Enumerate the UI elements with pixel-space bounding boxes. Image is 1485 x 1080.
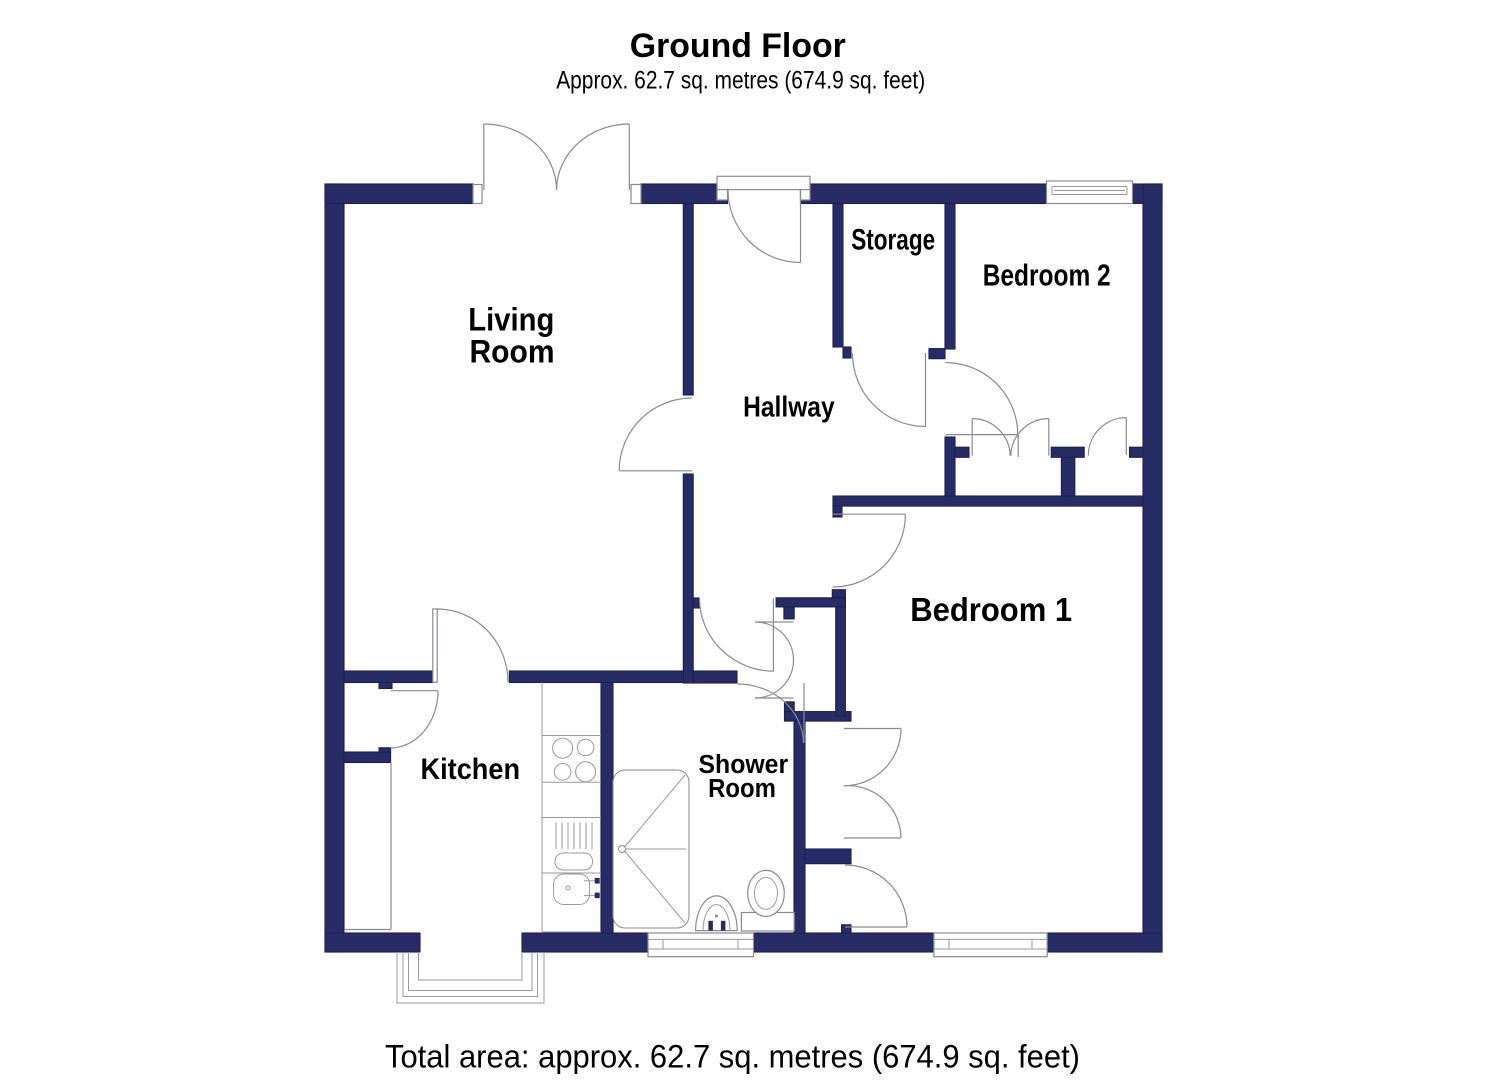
svg-text:Bedroom 1: Bedroom 1 xyxy=(910,592,1072,629)
svg-text:Total area: approx. 62.7 sq. m: Total area: approx. 62.7 sq. metres (674… xyxy=(385,1038,1080,1074)
svg-text:Storage: Storage xyxy=(851,223,935,256)
svg-text:Room: Room xyxy=(708,773,776,803)
svg-text:Ground Floor: Ground Floor xyxy=(630,27,846,65)
svg-text:Room: Room xyxy=(470,334,555,370)
svg-text:Living: Living xyxy=(468,302,554,338)
svg-text:Hallway: Hallway xyxy=(743,392,835,424)
svg-text:Approx. 62.7 sq. metres (674.9: Approx. 62.7 sq. metres (674.9 sq. feet) xyxy=(556,66,925,94)
svg-text:Kitchen: Kitchen xyxy=(421,753,521,786)
svg-text:Bedroom 2: Bedroom 2 xyxy=(983,258,1111,292)
